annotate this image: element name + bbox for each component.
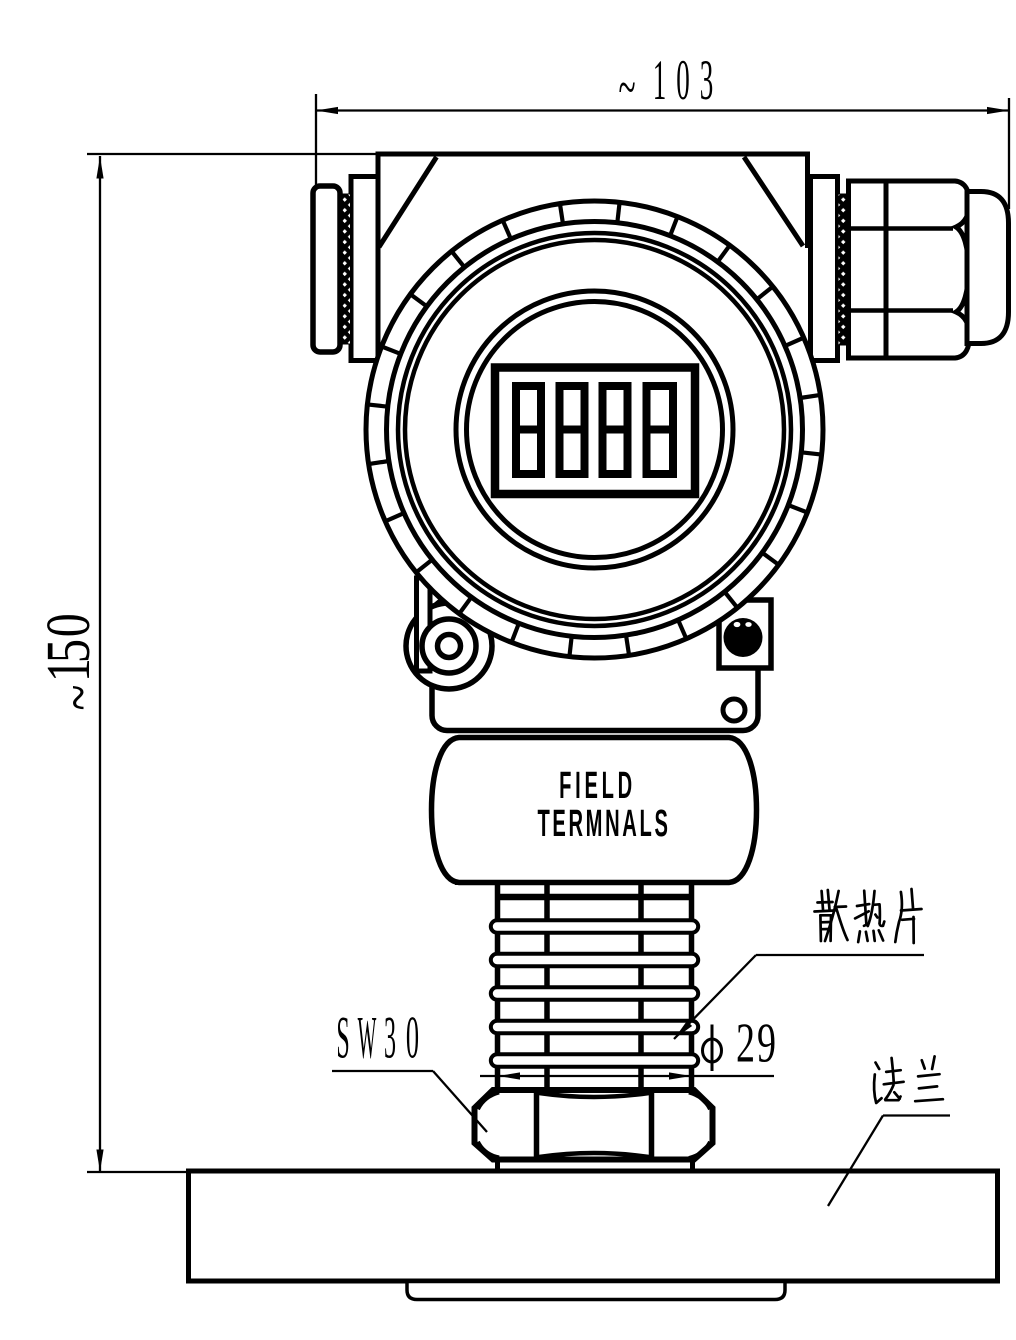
svg-text:5: 5: [34, 639, 104, 663]
svg-text:3: 3: [700, 48, 714, 112]
svg-text:S: S: [336, 1004, 349, 1071]
svg-text:0: 0: [406, 1006, 419, 1072]
svg-text:W: W: [358, 1004, 377, 1071]
svg-text:FIELD: FIELD: [559, 764, 636, 806]
svg-text:1: 1: [653, 48, 667, 112]
svg-text:~: ~: [44, 685, 114, 711]
svg-text:0: 0: [676, 48, 690, 112]
svg-text:3: 3: [384, 1004, 396, 1071]
svg-text:9: 9: [757, 1012, 776, 1074]
svg-text:TERMNALS: TERMNALS: [537, 802, 670, 844]
svg-text:2: 2: [736, 1012, 755, 1074]
svg-text:~: ~: [618, 56, 635, 119]
svg-text:0: 0: [34, 613, 104, 637]
